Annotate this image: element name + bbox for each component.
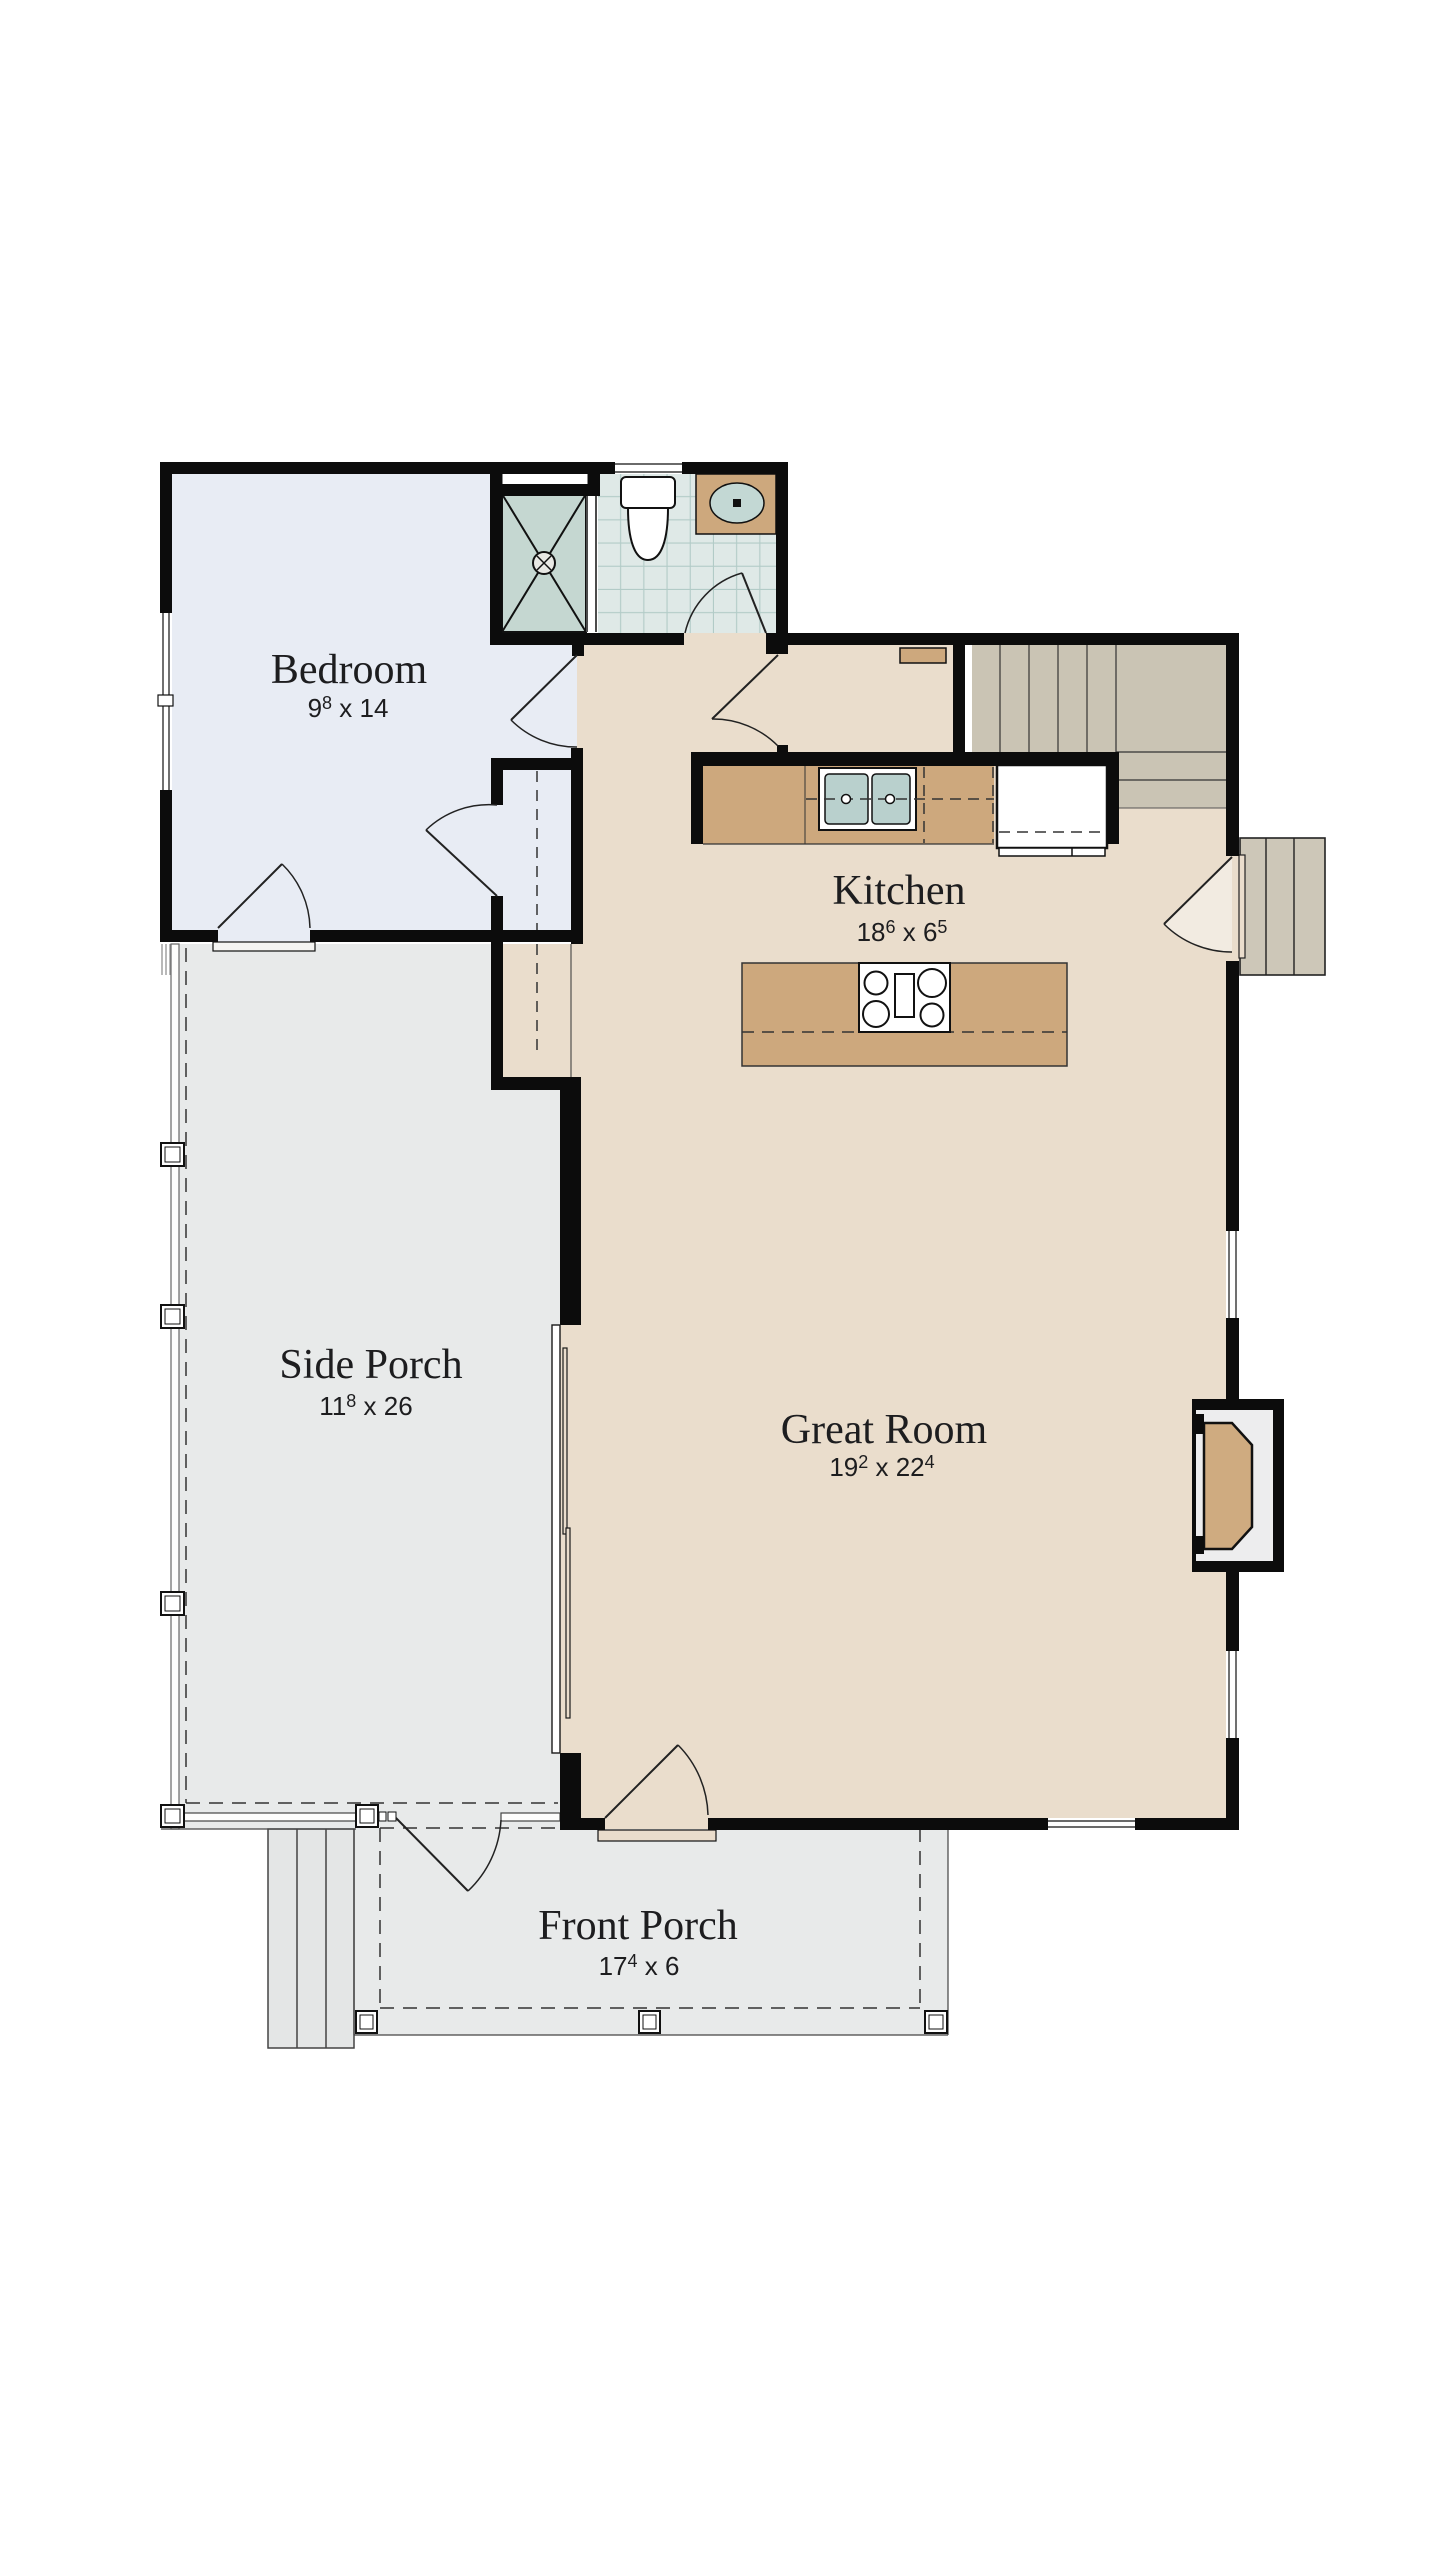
svg-text:Front Porch: Front Porch [538,1903,738,1949]
svg-text:192 x 224: 192 x 224 [829,1452,934,1482]
svg-text:Bedroom: Bedroom [271,647,428,693]
svg-text:186 x 65: 186 x 65 [857,917,948,947]
svg-text:Great Room: Great Room [781,1407,988,1453]
svg-text:98 x 14: 98 x 14 [308,693,389,723]
svg-text:Side Porch: Side Porch [279,1342,462,1388]
svg-text:Kitchen: Kitchen [833,868,966,914]
svg-text:174 x 6: 174 x 6 [599,1951,680,1981]
svg-text:118 x 26: 118 x 26 [319,1391,412,1421]
